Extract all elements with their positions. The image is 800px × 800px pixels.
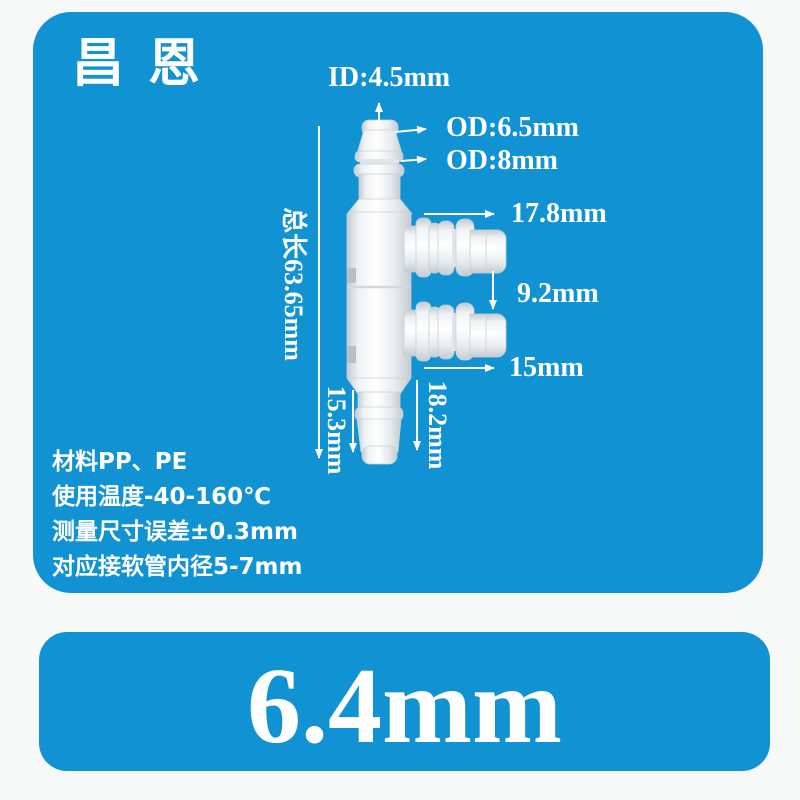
connector-body xyxy=(347,212,411,394)
label-inner-diameter: ID:4.5mm xyxy=(328,64,450,92)
brand-logo-text: 昌恩 xyxy=(72,36,224,93)
label-outer-diameter-tip: OD:6.5mm xyxy=(446,114,579,142)
label-side-port-lower-length: 15mm xyxy=(509,354,584,382)
label-side-port-upper-length: 17.8mm xyxy=(511,200,607,228)
size-badge-panel: 6.4mm xyxy=(39,632,770,771)
label-bottom-port-right-length: 18.2mm xyxy=(424,377,450,473)
dim-line-od-tip xyxy=(395,129,426,132)
spec-tolerance: 测量尺寸误差±0.3mm xyxy=(52,517,302,552)
spec-hose-size: 对应接软管内径5-7mm xyxy=(52,552,302,587)
top-port xyxy=(347,120,412,214)
spec-list: 材料PP、PE 使用温度-40-160℃ 测量尺寸误差±0.3mm 对应接软管内… xyxy=(52,447,302,587)
side-port-upper xyxy=(404,218,506,277)
bottom-port xyxy=(355,392,403,464)
spec-material: 材料PP、PE xyxy=(52,447,302,482)
label-bottom-port-left-length: 15.3mm xyxy=(323,382,349,478)
product-spec-image: { "colors":{ "panel_blue":"#1193d3", "pa… xyxy=(0,0,800,800)
dim-line-od-barb xyxy=(401,159,426,161)
label-total-length: 总长63.65mm xyxy=(280,201,306,367)
side-port-lower xyxy=(404,302,506,361)
label-outer-diameter-barb: OD:8mm xyxy=(446,147,558,175)
label-port-gap: 9.2mm xyxy=(517,280,599,308)
size-badge-text: 6.4mm xyxy=(247,643,562,761)
spec-temperature: 使用温度-40-160℃ xyxy=(52,482,302,517)
